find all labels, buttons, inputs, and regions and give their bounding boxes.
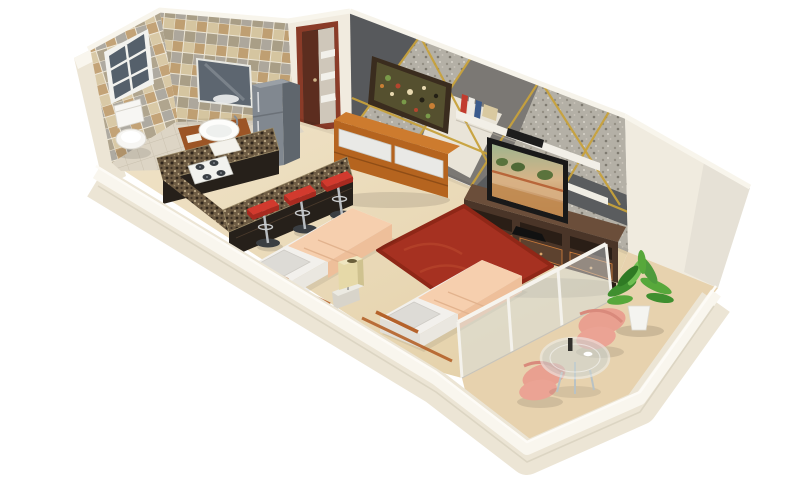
bottle xyxy=(568,338,573,351)
toilet-seat xyxy=(121,131,141,143)
fridge-handle xyxy=(258,92,259,112)
door-knob xyxy=(313,78,317,82)
mirror-sink-reflection xyxy=(213,95,239,104)
plant-pot xyxy=(628,306,650,330)
cup xyxy=(584,352,593,356)
vessel-sink-basin xyxy=(206,125,232,138)
floorplan-stage xyxy=(0,0,800,480)
door-leaf xyxy=(302,30,320,126)
floorplan-render xyxy=(0,0,800,480)
lamp-shade-opening xyxy=(347,259,357,263)
fridge-side xyxy=(282,79,300,165)
